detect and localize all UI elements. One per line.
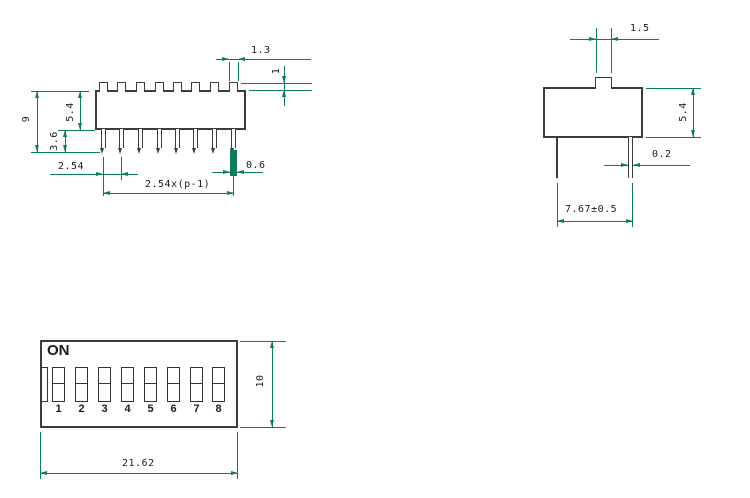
extension-bar (230, 150, 237, 176)
switch-slot-3 (98, 367, 111, 402)
pin (119, 129, 124, 148)
arrowhead (589, 37, 596, 41)
arrowhead (237, 170, 244, 174)
arrowhead (231, 471, 238, 475)
dimension-line (40, 473, 238, 474)
extension-line (240, 427, 286, 428)
position-label: 6 (167, 403, 180, 415)
arrowhead (78, 91, 82, 98)
dim-label: 1 (271, 61, 283, 81)
arrowhead (96, 172, 103, 176)
position-label: 8 (212, 403, 225, 415)
extension-line (121, 157, 122, 180)
pin (157, 129, 162, 148)
position-label: 3 (98, 403, 111, 415)
dim-label: 3.6 (49, 126, 61, 156)
dimension-line (272, 341, 273, 427)
arrowhead (282, 90, 286, 97)
extension-line (611, 28, 612, 73)
extension-line (249, 90, 312, 91)
actuator-bump (229, 82, 238, 92)
arrowhead (78, 123, 82, 130)
dim-label: 0.6 (246, 160, 266, 172)
arrowhead (633, 163, 640, 167)
pin (101, 129, 106, 148)
position-label: 4 (121, 403, 134, 415)
extension-line (241, 83, 312, 84)
side-pin-left (556, 137, 558, 178)
arrowhead (621, 163, 628, 167)
arrowhead (35, 145, 39, 152)
pin (138, 129, 143, 148)
arrowhead (121, 172, 128, 176)
arrowhead (691, 130, 695, 137)
arrowhead (35, 91, 39, 98)
pin (231, 129, 236, 148)
dim-label: 1.5 (630, 23, 650, 35)
position-label: 7 (190, 403, 203, 415)
switch-slot-7 (190, 367, 203, 402)
arrowhead (63, 145, 67, 152)
dip-switch-dimension-drawing: 1.3 1 9 5.4 (0, 0, 750, 498)
arrowhead (270, 341, 274, 348)
arrowhead (238, 57, 245, 61)
pin (193, 129, 198, 148)
dimension-line (216, 59, 311, 60)
arrowhead (227, 191, 234, 195)
dim-label: 21.62 (122, 458, 155, 470)
actuator-bump (136, 82, 145, 92)
actuator-bump (117, 82, 126, 92)
arrowhead (626, 219, 633, 223)
dim-label: 9 (21, 109, 33, 129)
dim-label: 5.4 (65, 97, 77, 127)
dim-label: 7.67±0.5 (565, 204, 617, 216)
arrowhead (63, 130, 67, 137)
arrowhead (223, 170, 230, 174)
side-pin-right (628, 137, 633, 178)
switch-slot-6 (167, 367, 180, 402)
switch-slot-5 (144, 367, 157, 402)
position-label: 2 (75, 403, 88, 415)
dim-label: 0.2 (652, 149, 672, 161)
dim-label: 2.54 (58, 161, 84, 173)
actuator-bump (99, 82, 108, 92)
dimension-line (284, 66, 285, 106)
dimension-line (37, 91, 38, 152)
switch-slot-4 (121, 367, 134, 402)
dim-label: 2.54x(p-1) (145, 179, 210, 191)
arrowhead (557, 219, 564, 223)
switch-slot-1 (52, 367, 65, 402)
actuator-bump (191, 82, 200, 92)
dimension-line (103, 193, 234, 194)
side-actuator-bump (595, 77, 612, 89)
dim-label: 5.4 (678, 97, 690, 127)
arrowhead (270, 420, 274, 427)
dim-label: 10 (255, 368, 267, 394)
switch-slot-8 (212, 367, 225, 402)
front-body (95, 90, 246, 130)
extension-line (646, 137, 701, 138)
pin (212, 129, 217, 148)
dimension-line (557, 221, 633, 222)
extension-line (229, 62, 230, 81)
extension-line (596, 28, 597, 73)
position-label: 5 (144, 403, 157, 415)
edge-notch (41, 367, 48, 402)
arrowhead (611, 37, 618, 41)
actuator-bump (210, 82, 219, 92)
extension-line (240, 341, 286, 342)
actuator-bump (155, 82, 164, 92)
arrowhead (222, 57, 229, 61)
switch-slot-2 (75, 367, 88, 402)
extension-line (238, 62, 239, 81)
extension-line (31, 152, 100, 153)
arrowhead (691, 88, 695, 95)
dim-label: 1.3 (251, 45, 271, 57)
top-body (40, 340, 238, 428)
arrowhead (103, 191, 110, 195)
pin (175, 129, 180, 148)
on-label: ON (47, 342, 70, 359)
side-body (543, 87, 643, 138)
actuator-bump (173, 82, 182, 92)
dimension-line (633, 165, 690, 166)
arrowhead (40, 471, 47, 475)
position-label: 1 (52, 403, 65, 415)
